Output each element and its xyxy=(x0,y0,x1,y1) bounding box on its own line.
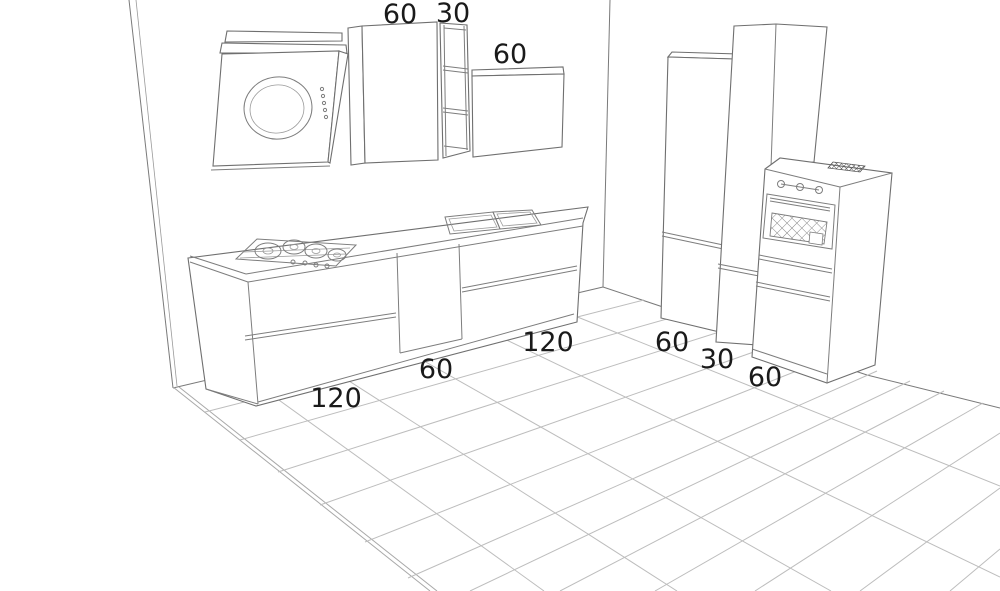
wall-cabinet-tall[interactable] xyxy=(348,22,438,165)
dim-label-shelf-unit: 30 xyxy=(436,0,470,29)
base-cabinet-run[interactable] xyxy=(188,207,588,406)
open-shelf-unit[interactable] xyxy=(440,23,470,158)
kitchen-planner-viewport: 60 30 60 120 60 120 60 30 60 xyxy=(0,0,1000,591)
dim-label-sink-cabinet: 120 xyxy=(522,327,574,358)
dim-label-tall-narrow: 30 xyxy=(700,344,734,375)
dim-label-wall-cabinet-low: 60 xyxy=(493,39,527,70)
oven-tower[interactable] xyxy=(752,158,892,383)
wall-cabinet-low[interactable] xyxy=(472,67,564,157)
dim-label-hob-cabinet: 120 xyxy=(310,383,362,414)
dim-label-wall-cabinet: 60 xyxy=(383,0,417,30)
range-hood[interactable] xyxy=(211,31,348,170)
dim-label-tall-cabinet: 60 xyxy=(655,327,689,358)
dim-label-oven-tower: 60 xyxy=(748,362,782,393)
dim-label-middle-cabinet: 60 xyxy=(419,354,453,385)
kitchen-3d-render: 60 30 60 120 60 120 60 30 60 xyxy=(0,0,1000,591)
